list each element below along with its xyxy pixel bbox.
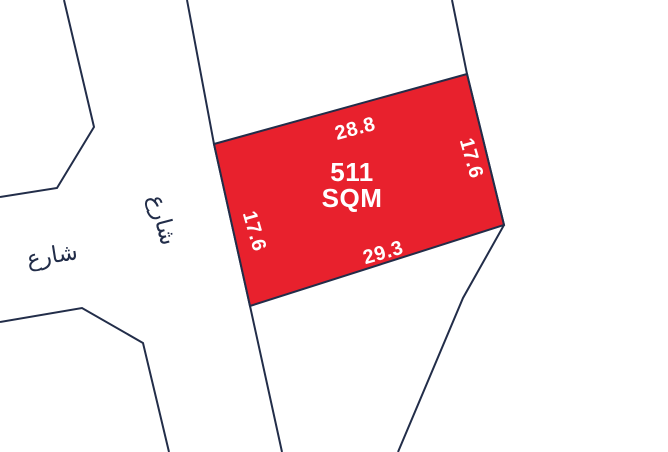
boundary-line-lower-left	[0, 308, 169, 452]
street-label-middle: شارع	[143, 192, 181, 248]
parcel-area-unit: SQM	[322, 183, 383, 213]
street-labels: شارع شارع	[25, 192, 181, 273]
plot-map-canvas: 28.8 17.6 29.3 17.6 511 SQM شارع شارع	[0, 0, 668, 452]
parcel-area-label: 511 SQM	[322, 157, 383, 213]
boundary-line-upper-left	[0, 0, 94, 197]
street-label-left: شارع	[25, 239, 80, 273]
cadastral-map: 28.8 17.6 29.3 17.6 511 SQM شارع شارع	[0, 0, 668, 452]
